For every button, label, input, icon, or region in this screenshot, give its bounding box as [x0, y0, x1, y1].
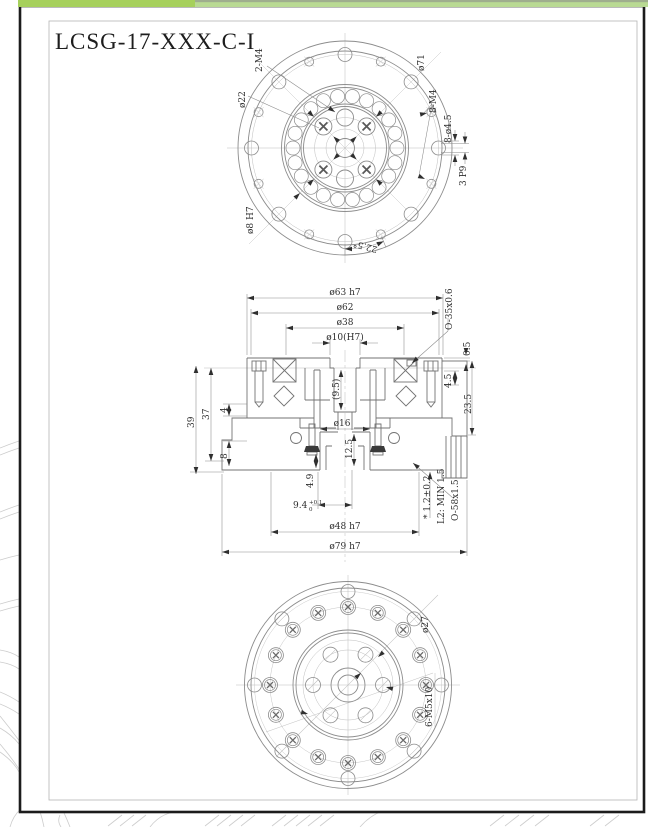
- drawing-title: LCSG-17-XXX-C-I: [55, 29, 255, 54]
- dim-49-label: 4.9: [306, 473, 316, 488]
- top-view-8m4-label: 8-M4: [429, 89, 439, 113]
- dim-95-label: (9.5): [331, 379, 342, 400]
- dim-12-label: * 1.2±0.2: [423, 475, 433, 519]
- dim-125-label: 12.5: [345, 439, 355, 459]
- dim-235-label: 23.5: [464, 394, 474, 414]
- drawing-sheet-stage: LCSG-17-XXX-C-I 2-M4 ø22 ø71 8-M4 8-ø4.5…: [0, 0, 648, 827]
- top-view-dia22-label: ø22: [238, 91, 248, 108]
- dim-94-tol-lower: 0: [309, 507, 313, 513]
- dim-39-label: 39: [187, 416, 197, 428]
- dim-dia16-label: ø16: [334, 419, 351, 429]
- top-view-dia8h7-label: ø8 H7: [246, 206, 256, 234]
- dim-dia10-label: ø10(H7): [326, 332, 363, 343]
- dim-dia63-label: ø63 h7: [329, 288, 361, 298]
- dim-37-label: 37: [202, 408, 212, 420]
- dim-94-label: 9.4: [293, 501, 308, 511]
- top-view-8dia45-label: 8-ø4.5: [444, 114, 454, 143]
- top-view-dia71-label: ø71: [417, 54, 427, 71]
- top-view-2m4-label: 2-M4: [255, 48, 265, 72]
- bottom-view-dia27-label: ø27: [421, 616, 431, 633]
- dim-dia48-label: ø48 h7: [329, 522, 361, 532]
- dim-94-tol-upper: +0.1: [309, 500, 322, 506]
- dim-dia79-label: ø79 h7: [329, 542, 361, 552]
- dim-oring-bottom-label: O-58x1.5: [451, 479, 461, 521]
- dim-oring-top-label: O-35x0.6: [445, 288, 455, 330]
- top-view-keyway-label: 3 P9: [459, 165, 469, 186]
- dim-05-label: 0.5: [463, 341, 473, 356]
- dim-8-label: 8: [220, 453, 230, 459]
- dim-dia38-label: ø38: [337, 318, 354, 328]
- dim-dia62-label: ø62: [337, 303, 354, 313]
- dim-l2-label: L2: MIN 1.5: [437, 468, 447, 524]
- dim-4-label: 4: [220, 407, 230, 413]
- top-accent-bar: [18, 0, 648, 7]
- bottom-view-6m5-label: 6-M5x10: [425, 686, 435, 727]
- dim-45-label: 4.5: [444, 373, 454, 388]
